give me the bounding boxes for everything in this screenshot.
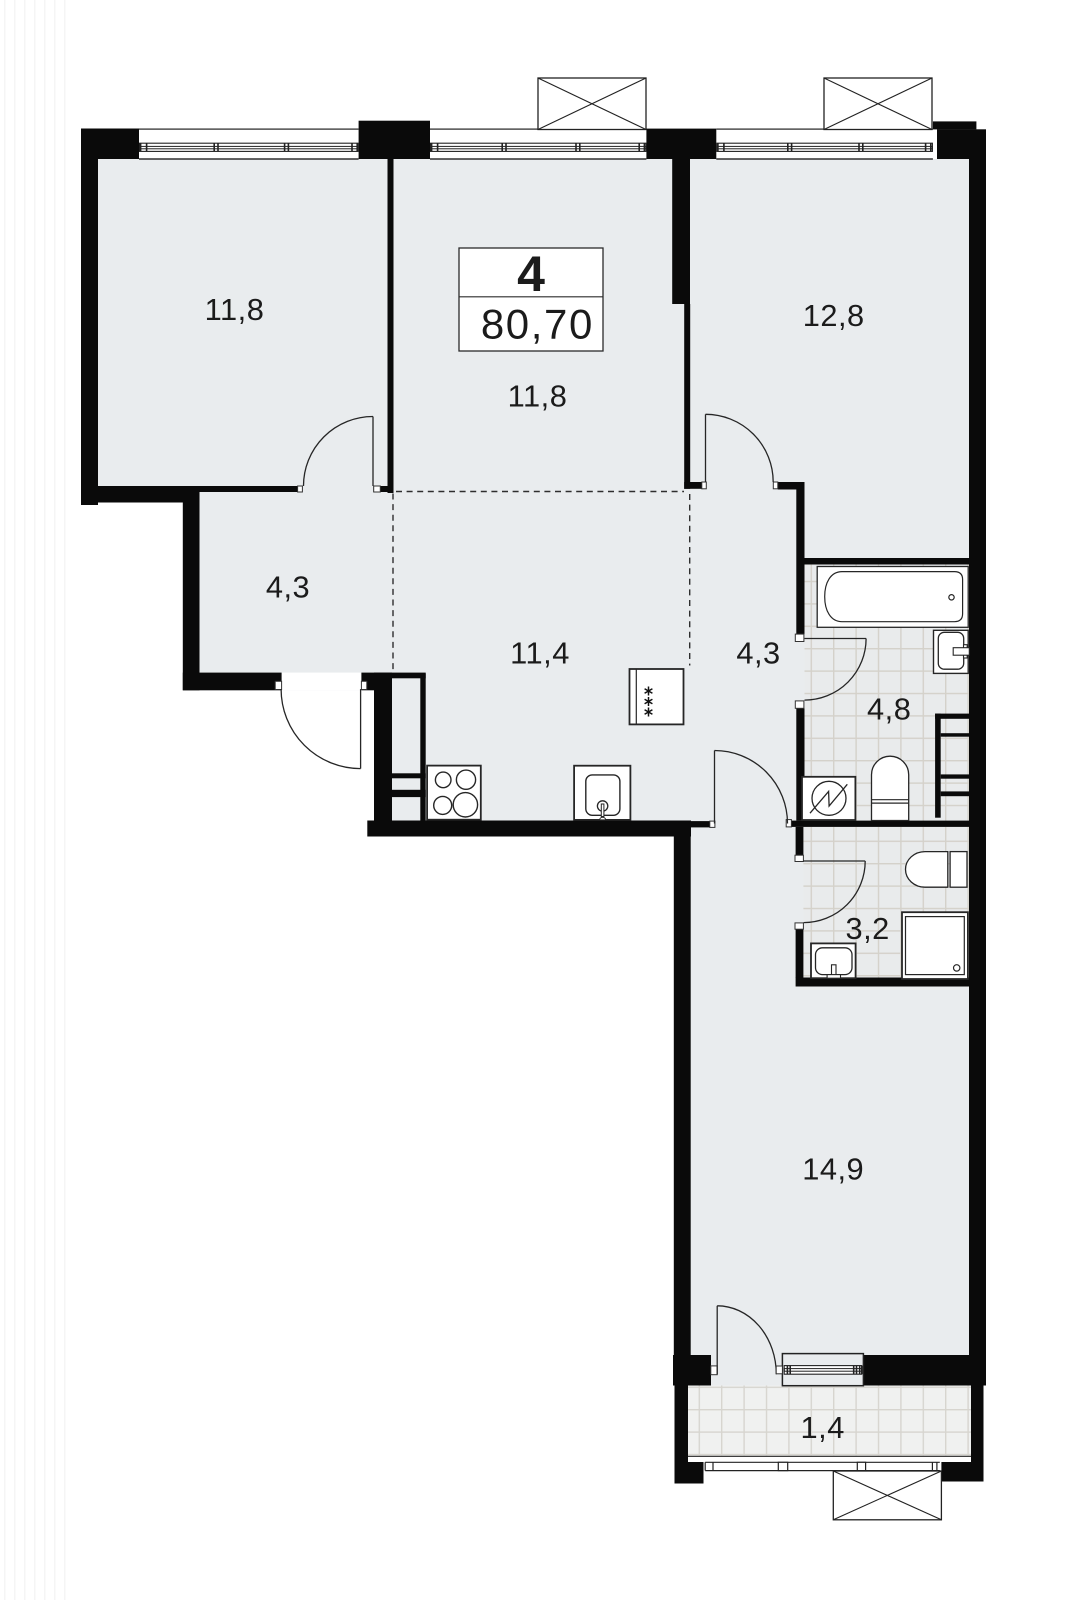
svg-text:11,4: 11,4 (510, 635, 570, 670)
svg-text:14,9: 14,9 (802, 1151, 864, 1186)
svg-text:4,8: 4,8 (867, 692, 911, 727)
svg-text:4: 4 (517, 246, 545, 302)
svg-text:80,70: 80,70 (481, 300, 594, 347)
svg-text:4,3: 4,3 (736, 636, 780, 671)
svg-text:11,8: 11,8 (205, 292, 265, 327)
svg-text:1,4: 1,4 (801, 1410, 845, 1445)
svg-text:12,8: 12,8 (803, 298, 865, 333)
svg-text:4,3: 4,3 (266, 570, 310, 605)
svg-text:11,8: 11,8 (508, 378, 568, 413)
svg-text:3,2: 3,2 (845, 911, 889, 946)
